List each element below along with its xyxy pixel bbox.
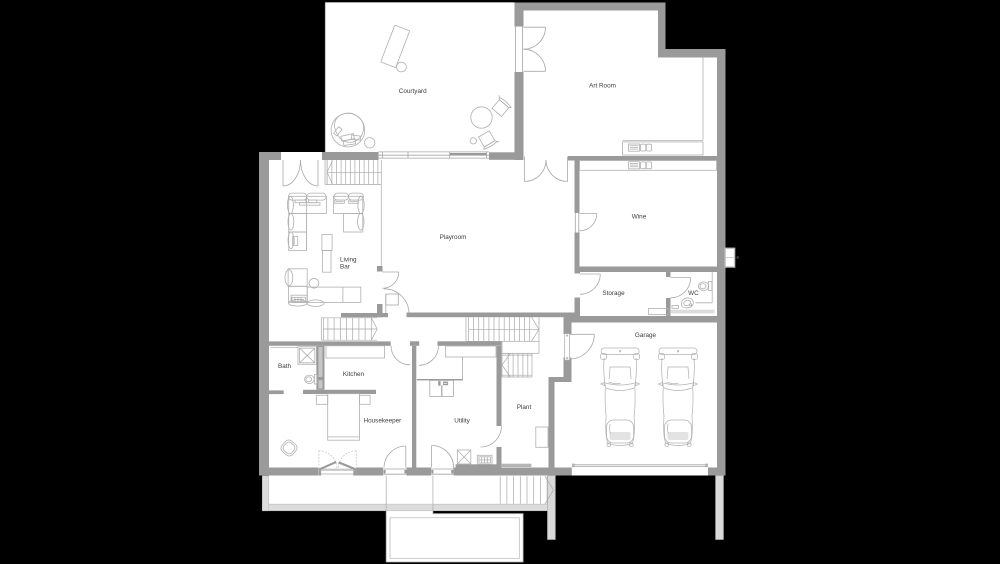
svg-text:Garage: Garage [635, 332, 657, 339]
svg-text:Bar: Bar [340, 264, 350, 271]
svg-text:Utility: Utility [454, 417, 470, 424]
svg-text:Courtyard: Courtyard [399, 88, 427, 95]
svg-text:Storage: Storage [602, 290, 625, 297]
svg-text:Bath: Bath [278, 363, 292, 370]
svg-text:Art Room: Art Room [589, 82, 616, 89]
svg-text:WC: WC [688, 290, 699, 297]
svg-text:Housekeeper: Housekeeper [364, 417, 402, 424]
svg-text:Kitchen: Kitchen [343, 371, 365, 378]
svg-text:Living: Living [340, 257, 357, 264]
svg-text:Wine: Wine [632, 213, 647, 220]
svg-text:Plant: Plant [517, 404, 532, 411]
svg-text:Playroom: Playroom [440, 234, 467, 241]
